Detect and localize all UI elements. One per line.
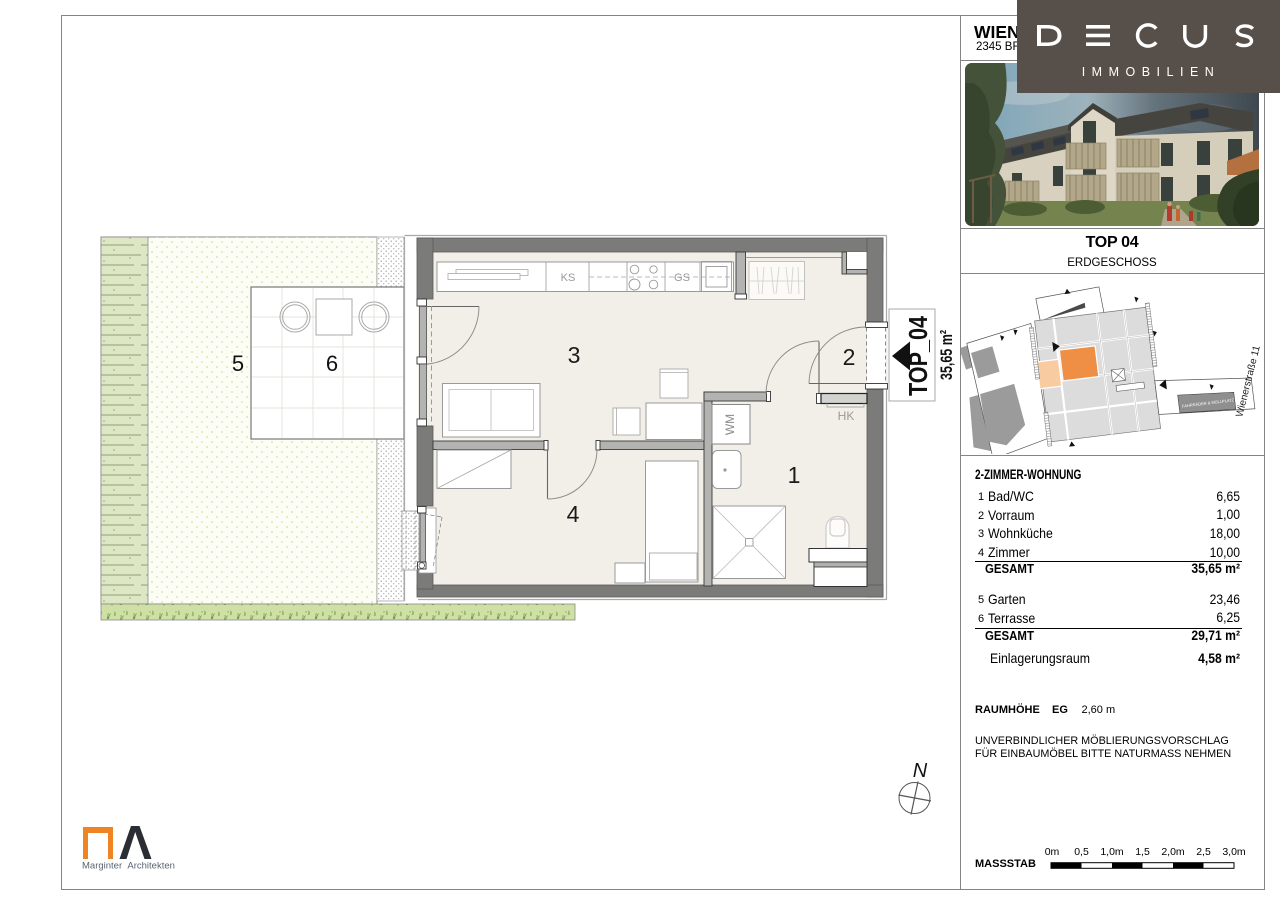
svg-text:1: 1	[788, 462, 801, 488]
svg-text:3,0m: 3,0m	[1222, 846, 1246, 858]
svg-text:N: N	[913, 760, 928, 782]
svg-text:Marginter Architekten: Marginter Architekten	[82, 861, 175, 872]
svg-text:TOP_04: TOP_04	[903, 316, 933, 396]
svg-text:2,0m: 2,0m	[1161, 846, 1185, 858]
svg-text:1,5: 1,5	[1135, 846, 1150, 858]
svg-text:4: 4	[567, 501, 580, 527]
svg-text:0,5: 0,5	[1074, 846, 1089, 858]
svg-text:6: 6	[326, 351, 338, 376]
svg-text:HK: HK	[838, 409, 855, 423]
svg-text:2,5: 2,5	[1196, 846, 1211, 858]
svg-text:WM: WM	[723, 414, 737, 435]
svg-text:5: 5	[232, 351, 244, 376]
svg-text:2: 2	[843, 344, 856, 370]
svg-text:KS: KS	[561, 272, 576, 284]
svg-text:IMMOBILIEN: IMMOBILIEN	[1082, 65, 1221, 79]
svg-text:35,65 m²: 35,65 m²	[937, 330, 956, 380]
svg-text:1,0m: 1,0m	[1100, 846, 1124, 858]
svg-text:3: 3	[568, 342, 581, 368]
svg-text:GS: GS	[674, 272, 690, 284]
svg-text:0m: 0m	[1045, 846, 1060, 858]
